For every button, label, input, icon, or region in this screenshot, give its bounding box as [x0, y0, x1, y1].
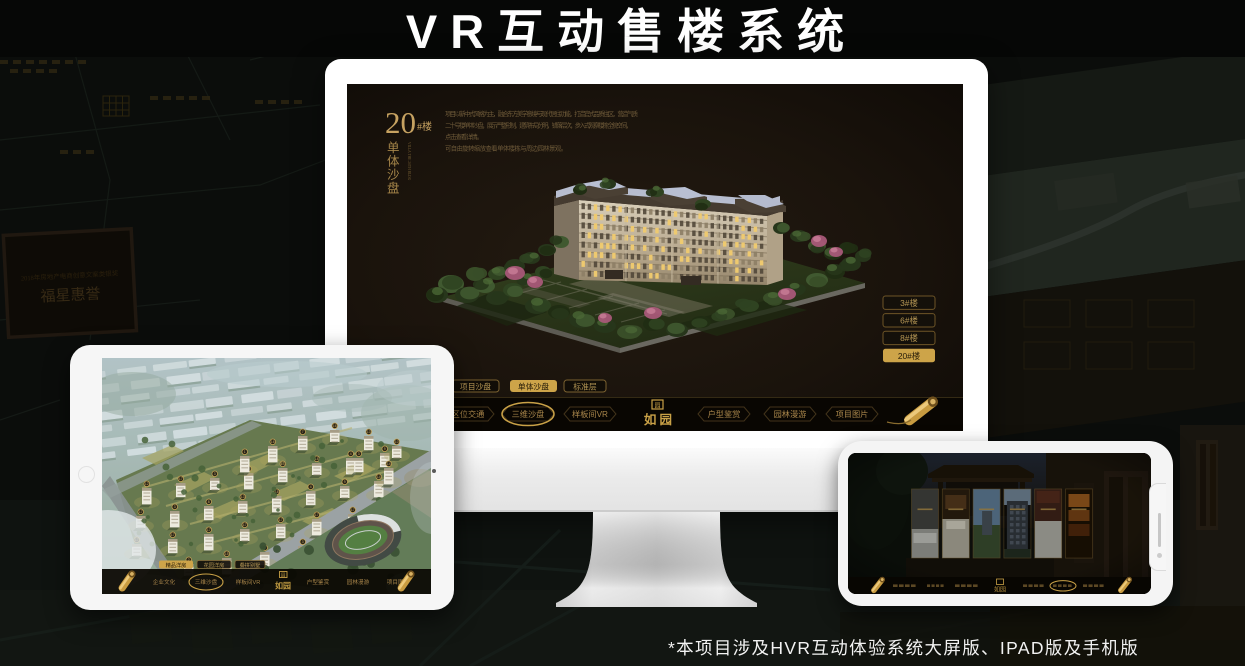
svg-text:二十号楼单体沙盘，展示严整形制，建筑布局分明，错落层次，步入: 二十号楼单体沙盘，展示严整形制，建筑布局分明，错落层次，步入式观察楼栋全貌空间，	[445, 121, 632, 130]
svg-text:如 园: 如 园	[644, 412, 672, 427]
svg-text:区位交通: 区位交通	[452, 409, 485, 419]
svg-text:6#楼: 6#楼	[900, 316, 918, 326]
svg-text:样板间VR: 样板间VR	[236, 578, 261, 586]
svg-text:项目以新中式风格为主，融合东方美学意境与现代居住功能，打造官: 项目以新中式风格为主，融合东方美学意境与现代居住功能，打造官式品质住区，营造气质	[445, 109, 638, 118]
svg-text:如园: 如园	[994, 586, 1006, 594]
svg-text:项目沙盘: 项目沙盘	[460, 381, 491, 391]
svg-text:盘: 盘	[387, 181, 400, 196]
svg-text:企业文化: 企业文化	[153, 578, 176, 586]
svg-text:福星惠誉: 福星惠誉	[40, 285, 101, 305]
svg-text:标准层: 标准层	[573, 381, 597, 391]
svg-text:点击查看详情。: 点击查看详情。	[445, 132, 483, 141]
svg-text:精品洋房: 精品洋房	[166, 561, 187, 569]
svg-text:20#楼: 20#楼	[898, 351, 921, 361]
svg-text:园林漫游: 园林漫游	[347, 578, 370, 586]
svg-text:样板间VR: 样板间VR	[572, 409, 608, 419]
svg-text:体: 体	[387, 155, 400, 169]
svg-text:单: 单	[387, 141, 400, 155]
svg-text:园林漫游: 园林漫游	[774, 409, 807, 419]
svg-text:叠拼别墅: 叠拼别墅	[240, 561, 261, 569]
svg-text:#楼: #楼	[417, 120, 432, 133]
svg-text:8#楼: 8#楼	[900, 333, 918, 343]
svg-text:沙: 沙	[387, 168, 400, 182]
svg-text:园: 园	[654, 403, 660, 410]
svg-text:可自由旋转缩放查看单体楼栋与周边园林景观。: 可自由旋转缩放查看单体楼栋与周边园林景观。	[445, 144, 567, 153]
svg-text:三维沙盘: 三维沙盘	[512, 409, 545, 419]
svg-text:单体沙盘: 单体沙盘	[518, 381, 549, 391]
svg-text:户型鉴赏: 户型鉴赏	[307, 578, 330, 586]
svg-text:3#楼: 3#楼	[900, 298, 918, 308]
svg-text:三维沙盘: 三维沙盘	[195, 578, 218, 586]
svg-text:如园: 如园	[275, 581, 291, 591]
svg-text:项目图片: 项目图片	[836, 409, 869, 419]
svg-text:花园洋房: 花园洋房	[204, 561, 225, 569]
svg-text:20: 20	[385, 105, 416, 140]
svg-text:VILLA THE 20TH BLDG: VILLA THE 20TH BLDG	[407, 142, 411, 181]
svg-text:户型鉴赏: 户型鉴赏	[708, 409, 741, 419]
